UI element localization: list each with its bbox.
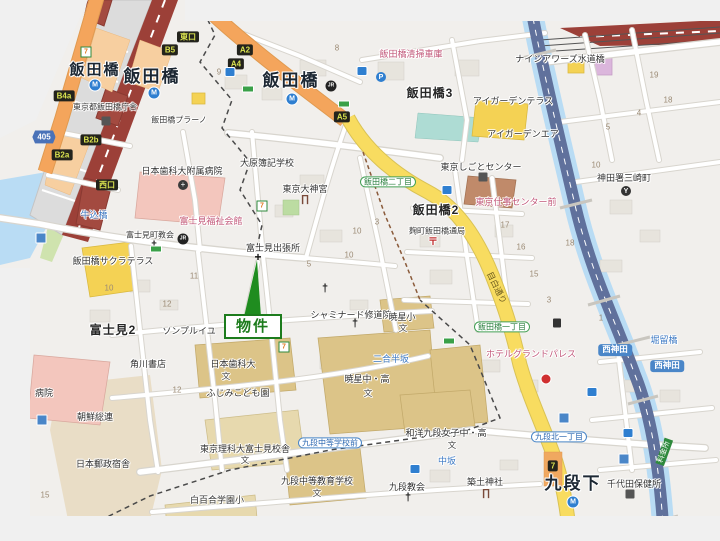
map-base-graphics [0, 0, 720, 541]
map-canvas[interactable]: 東口B5A2A4A5B4aB2bB2a西口7405飯田橋飯田橋飯田橋九段下飯田橋… [0, 0, 720, 541]
property-marker[interactable]: 物件 [224, 314, 282, 339]
